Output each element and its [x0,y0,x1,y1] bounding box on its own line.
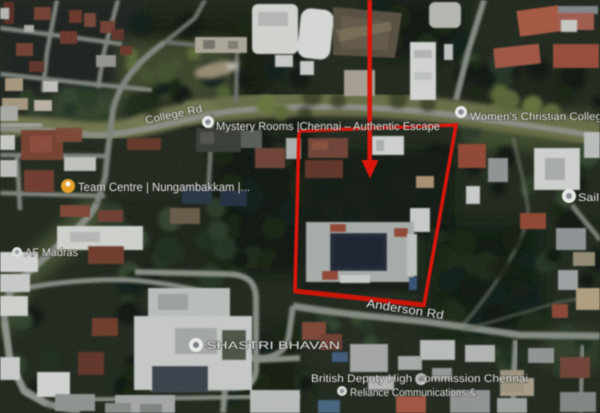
svg-text:Sail: Sail [578,192,599,204]
svg-text:Reliance Communications &: Reliance Communications & [350,387,477,399]
svg-text:Team Centre | Nungambakkam |..: Team Centre | Nungambakkam |... [78,180,250,194]
svg-text:British Deputy High Commission: British Deputy High Commission Chennai [311,373,528,385]
svg-text:SHASTRI BHAVAN: SHASTRI BHAVAN [206,340,340,352]
svg-text:Women's Christian Colleg: Women's Christian Colleg [470,111,600,123]
svg-text:Mystery Rooms |Chennai – Authe: Mystery Rooms |Chennai – Authentic Escap… [216,121,440,133]
svg-text:AF Madras: AF Madras [25,247,78,259]
